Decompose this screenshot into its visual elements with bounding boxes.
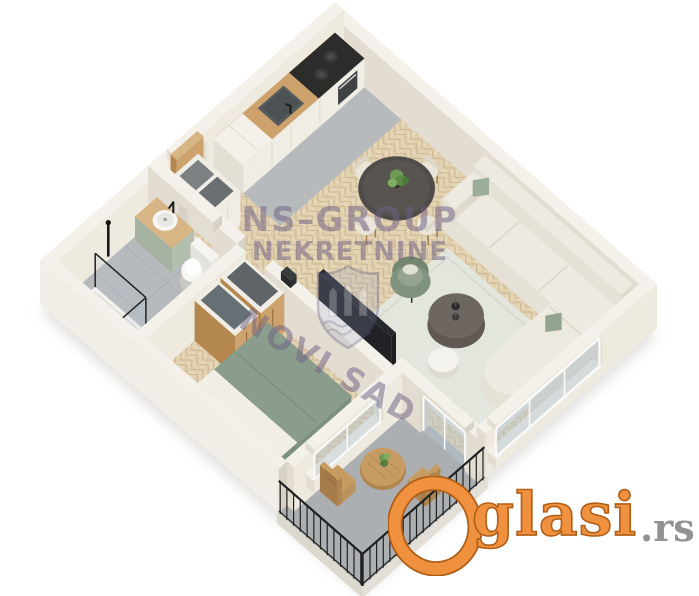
canvas: { "image": { "type": "real-estate-3d-flo… (0, 0, 699, 596)
watermark-line-1: NS–GROUP (240, 200, 460, 240)
coffee-table-white (428, 348, 459, 378)
logo-text: glasi (472, 480, 637, 550)
ns-group-shield-icon (312, 262, 384, 352)
logo-letter-o-icon (388, 476, 482, 576)
oglasi-logo: glasi .rs (388, 472, 698, 582)
floorplan-image: NS–GROUP NEKRETNINE NOVI SAD glasi .rs (0, 0, 699, 596)
logo-tld: .rs (640, 505, 695, 550)
coffee-table-dark (427, 293, 485, 348)
